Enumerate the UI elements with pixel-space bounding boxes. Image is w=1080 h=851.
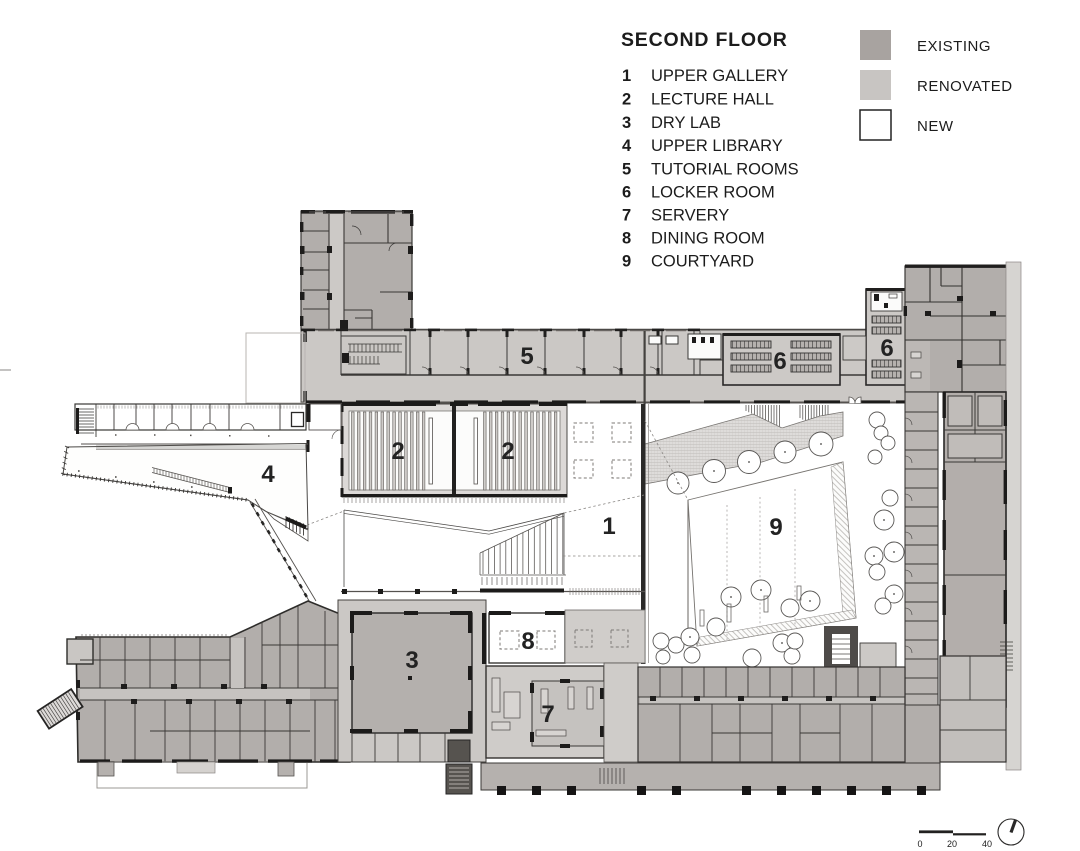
svg-text:2: 2 <box>501 438 514 465</box>
svg-text:6: 6 <box>622 184 631 202</box>
svg-text:3: 3 <box>622 114 631 132</box>
svg-text:COURTYARD: COURTYARD <box>651 253 754 271</box>
svg-text:RENOVATED: RENOVATED <box>917 78 1013 95</box>
svg-text:SECOND FLOOR: SECOND FLOOR <box>621 29 788 51</box>
svg-text:TUTORIAL ROOMS: TUTORIAL ROOMS <box>651 161 799 179</box>
svg-text:1: 1 <box>602 513 615 540</box>
svg-text:UPPER LIBRARY: UPPER LIBRARY <box>651 137 783 155</box>
svg-text:LECTURE HALL: LECTURE HALL <box>651 91 774 109</box>
svg-text:5: 5 <box>520 343 533 370</box>
svg-text:9: 9 <box>769 514 782 541</box>
svg-text:NEW: NEW <box>917 118 954 135</box>
svg-text:20: 20 <box>947 839 957 849</box>
svg-text:2: 2 <box>622 91 631 109</box>
svg-text:6: 6 <box>773 348 786 375</box>
svg-text:7: 7 <box>541 701 554 728</box>
svg-text:5: 5 <box>622 161 631 179</box>
svg-text:7: 7 <box>622 207 631 225</box>
svg-text:EXISTING: EXISTING <box>917 38 991 55</box>
svg-text:LOCKER ROOM: LOCKER ROOM <box>651 184 775 202</box>
svg-text:DRY LAB: DRY LAB <box>651 114 721 132</box>
svg-text:UPPER GALLERY: UPPER GALLERY <box>651 67 788 85</box>
svg-text:40: 40 <box>982 839 992 849</box>
svg-text:8: 8 <box>622 230 631 248</box>
svg-text:SERVERY: SERVERY <box>651 207 729 225</box>
svg-text:1: 1 <box>622 67 631 85</box>
svg-text:2: 2 <box>391 438 404 465</box>
svg-text:4: 4 <box>261 461 275 488</box>
svg-text:0: 0 <box>917 839 922 849</box>
svg-text:8: 8 <box>521 628 534 655</box>
svg-text:6: 6 <box>880 335 893 362</box>
svg-text:DINING ROOM: DINING ROOM <box>651 230 765 248</box>
svg-text:3: 3 <box>405 647 418 674</box>
svg-text:9: 9 <box>622 253 631 271</box>
svg-text:4: 4 <box>622 137 632 155</box>
